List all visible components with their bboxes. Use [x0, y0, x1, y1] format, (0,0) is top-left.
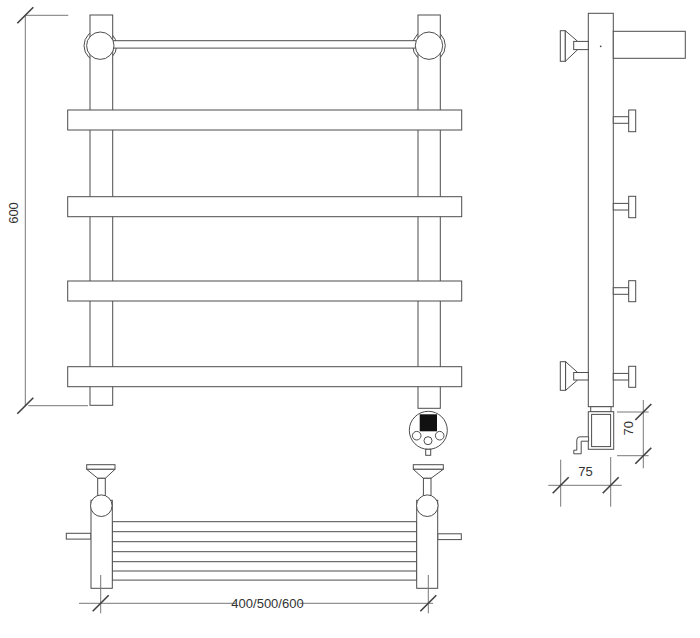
dimension-wall-distance: 75: [548, 457, 621, 507]
wall-bracket-top: [560, 31, 588, 62]
bracket-cone-icon: [413, 469, 443, 478]
dimension-height-label: 600: [6, 202, 21, 224]
shelf-arm-side: [613, 31, 685, 58]
bar-stub-4: [613, 373, 628, 380]
dimension-75-label: 75: [578, 464, 592, 479]
front-view: 600: [6, 7, 462, 455]
bar-cap-2: [629, 196, 636, 217]
dimension-element-height: 70: [617, 400, 651, 468]
towel-bar-2: [68, 197, 462, 217]
top-view: 400/500/600: [66, 465, 461, 614]
bracket-wall-plate: [413, 465, 443, 470]
knob-stem: [426, 449, 431, 455]
knob-button-middle-icon: [424, 437, 432, 445]
towel-bar-1: [68, 110, 462, 130]
center-mark: [600, 45, 602, 47]
dimension-width-label: 400/500/600: [231, 596, 303, 611]
cable-elbow-icon: [574, 437, 589, 454]
technical-drawing: 600: [0, 0, 700, 638]
side-view: 70 75: [548, 13, 685, 506]
bar-cap-3: [629, 281, 636, 302]
towel-bar-3: [68, 281, 462, 301]
knob-button-right-icon: [435, 431, 444, 440]
post-cap-left-circle: [91, 495, 113, 517]
bar-cap-1: [629, 110, 636, 132]
top-rail-tube: [100, 41, 429, 48]
bar-ends-side: [613, 110, 635, 387]
left-joint-circle: [87, 32, 114, 59]
shelf-tubes-plan: [112, 522, 416, 580]
housing-inner-box: [592, 414, 611, 446]
heating-element-knob: [409, 411, 447, 455]
bracket-wall-plate: [87, 465, 115, 470]
side-post: [588, 13, 613, 406]
towel-bar-4: [68, 367, 462, 387]
bar-overhang-left: [66, 533, 91, 539]
bracket-wall-plate: [560, 362, 565, 391]
drawing-canvas: 600: [0, 0, 700, 638]
bracket-wall-plate: [560, 31, 565, 62]
bracket-stem: [574, 373, 589, 381]
post-cap-right-circle: [417, 495, 439, 517]
knob-display-icon: [420, 414, 437, 431]
bar-stub-3: [613, 288, 628, 295]
right-joint-circle: [415, 32, 442, 59]
bracket-cone-icon: [87, 469, 115, 478]
bar-cap-4: [629, 366, 636, 387]
wall-bracket-bottom: [560, 362, 588, 391]
dimension-70-label: 70: [621, 421, 636, 435]
knob-button-left-icon: [412, 431, 421, 440]
heater-housing: [574, 407, 614, 454]
bracket-stem: [574, 41, 589, 49]
bar-overhang-right: [438, 534, 462, 540]
dimension-width: 400/500/600: [79, 575, 436, 613]
bar-stub-2: [613, 203, 628, 210]
bar-stub-1: [613, 117, 628, 124]
